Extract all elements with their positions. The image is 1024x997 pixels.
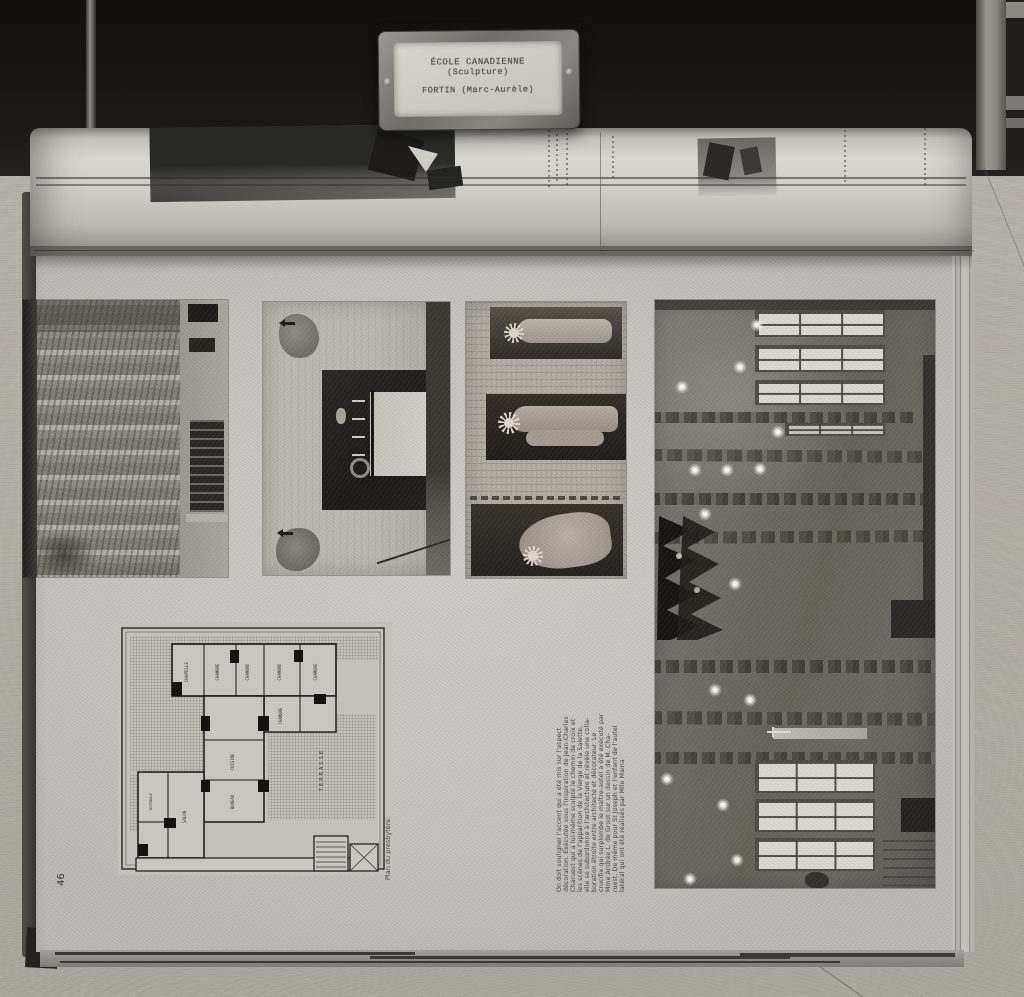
ceiling-light <box>660 772 674 786</box>
low-window-strip <box>785 422 885 436</box>
statue-silhouette <box>336 408 346 424</box>
wall-window <box>188 304 218 322</box>
body-text-line: décoration. Exécutée sous l'inspiration … <box>563 668 570 892</box>
ceiling-light <box>720 463 734 477</box>
window-panes <box>757 840 873 869</box>
wall-window <box>189 338 215 352</box>
page-number-wrapper: 46 <box>56 858 72 886</box>
body-text-line: boration étroite entre architecte et déc… <box>591 668 598 892</box>
candlestick <box>352 400 365 402</box>
body-text-line: ruest. De même pour St Joseph et l'enfan… <box>612 668 619 892</box>
speaker-dark-block <box>901 798 935 832</box>
plan-room-label: CHAMBRE <box>277 663 282 680</box>
right-frame-strip <box>976 0 1006 170</box>
arrow-head <box>279 319 285 327</box>
page-edge-line <box>370 956 790 959</box>
curled-page-fragment <box>697 137 776 196</box>
carved-figure <box>526 430 604 446</box>
page-fold-rule <box>36 177 966 179</box>
right-slatted-panel <box>1006 0 1024 152</box>
ceiling-light <box>716 798 730 812</box>
chandelier-icon <box>657 516 723 640</box>
relief-panel <box>490 307 622 359</box>
page-number: 46 <box>56 858 72 886</box>
clerestory-window <box>755 310 885 337</box>
page-edge-line <box>740 953 955 957</box>
concrete-column <box>655 412 917 423</box>
plant-silhouette <box>805 872 829 888</box>
ceiling-light <box>708 683 722 697</box>
concrete-column <box>655 711 935 725</box>
fragment-mark <box>703 142 735 180</box>
concrete-column <box>655 493 930 505</box>
body-text-wrapper: On doit souligner l'accent qui a été mis… <box>556 668 626 892</box>
body-text-line: crucifix qui surplombe le maître-autel a… <box>598 668 605 892</box>
page-fold-rule <box>36 184 966 186</box>
slat <box>1006 96 1024 110</box>
ceiling-light <box>771 425 785 439</box>
body-text-line: On doit souligner l'accent qui a été mis… <box>556 668 563 892</box>
ceiling-light <box>750 318 764 332</box>
ceiling-light <box>743 693 757 707</box>
candlestick <box>352 436 365 438</box>
page-vertical-crease <box>600 132 601 250</box>
ceiling-light <box>688 463 702 477</box>
window-panes <box>787 424 883 434</box>
brick-course <box>470 496 622 500</box>
illegible-text-marks <box>612 136 614 180</box>
crucifix-icon <box>772 727 774 737</box>
door-sill <box>186 514 228 522</box>
plan-room-label: VESTIBULE <box>149 793 153 810</box>
sanctuary-dark-band <box>923 355 935 615</box>
altar-front <box>370 392 434 476</box>
slat <box>1006 118 1024 128</box>
relief-panel <box>486 394 626 460</box>
floor-plan: CHAPELLE CHAMBRE CHAMBRE CHAMBRE CHAMBRE… <box>118 622 392 875</box>
window-panes <box>757 347 883 370</box>
plan-room-label: CHAMBRE <box>313 663 318 680</box>
body-text-line: Charuest qui a lui-même sculpté le chemi… <box>570 668 577 892</box>
label-line-3: FORTIN (Marc-Aurèle) <box>394 84 562 96</box>
page-edge-line <box>55 952 415 955</box>
clerestory-window <box>755 345 885 372</box>
page-stack-bottom <box>40 950 964 967</box>
halo-sunburst-icon <box>523 546 543 566</box>
body-text-line: Mme Andrée L. de Groot sur un dessin de … <box>605 668 612 892</box>
illegible-text-marks <box>566 128 568 188</box>
plan-room-label: CUISINE <box>230 753 235 770</box>
ceiling-light <box>733 360 747 374</box>
door <box>190 420 224 512</box>
photograph-of-open-book: CHAPELLE CHAMBRE CHAMBRE CHAMBRE CHAMBRE… <box>0 0 1024 997</box>
illegible-text-marks <box>924 128 926 188</box>
ceiling-light <box>728 577 742 591</box>
window-panes <box>757 382 883 403</box>
concrete-column <box>655 449 925 463</box>
body-text: On doit souligner l'accent qui a été mis… <box>556 668 626 892</box>
page-stack-right-edge <box>952 252 974 952</box>
arrow-head <box>277 529 283 537</box>
candlestick <box>352 418 365 420</box>
halo-sunburst-icon <box>504 323 524 343</box>
clerestory-window <box>755 380 885 405</box>
shelf-edge-highlight <box>86 0 96 142</box>
fragment-mark <box>740 146 763 175</box>
clerestory-window <box>755 760 875 793</box>
ceiling-light <box>730 853 744 867</box>
altar-niche <box>322 370 442 510</box>
window-panes <box>757 801 873 830</box>
window-panes <box>757 312 883 335</box>
building-wall <box>180 300 228 577</box>
halo-sunburst-icon <box>498 412 520 434</box>
label-card: ÉCOLE CANADIENNE (Sculpture) FORTIN (Mar… <box>394 41 563 117</box>
carved-figure <box>512 406 618 432</box>
altar-rail-strip <box>773 728 867 739</box>
body-text-line: elle se subordonne à l'architecture et r… <box>584 668 591 892</box>
photo-relief-panels <box>466 302 626 578</box>
plan-caption: Plan du presbytère. <box>384 794 396 880</box>
organ-dark-block <box>891 600 935 638</box>
walkway-shadow-blob <box>31 532 97 577</box>
body-text-line: latéral qui ont été réalisés par Mlle Ma… <box>619 668 626 892</box>
nave-top-edge <box>655 300 935 310</box>
window-panes <box>757 762 873 791</box>
plan-room-label: CHAPELLE <box>184 661 189 682</box>
body-text-line: les scènes de l'apparition de la Vierge … <box>577 668 584 892</box>
table-seam <box>984 168 1024 270</box>
page-edge-line <box>60 961 840 963</box>
plan-caption-wrapper: Plan du presbytère. <box>384 794 396 880</box>
crucifix-icon <box>767 731 791 733</box>
plate-screw-icon <box>384 78 392 86</box>
carved-figure <box>518 319 612 343</box>
label-line-2: (Sculpture) <box>394 66 562 78</box>
clerestory-window <box>755 838 875 871</box>
ceiling-light <box>698 507 712 521</box>
chapel-floor-band <box>426 302 450 575</box>
altar-table <box>883 840 935 886</box>
plan-room-label: CHAMBRE <box>215 663 220 680</box>
photo-church-nave <box>655 300 935 888</box>
wall-relief-sculpture <box>279 314 319 358</box>
illegible-text-marks <box>548 130 550 188</box>
photo-exterior-walkway <box>23 300 228 577</box>
photo-chapel-altar <box>263 302 450 575</box>
plan-room-label: SALON <box>182 810 187 823</box>
plan-room-label: CHAMBRE <box>278 707 283 724</box>
arrow-marker-icon <box>281 532 293 535</box>
concrete-column <box>655 660 935 673</box>
plan-room-label: TERRASSE <box>319 749 325 792</box>
arrow-marker-icon <box>283 322 295 325</box>
plan-room-label: BUREAU <box>230 794 235 809</box>
plan-room-label: CHAMBRE <box>245 663 250 680</box>
ceiling-light <box>683 872 697 886</box>
relief-panel <box>471 504 623 576</box>
slat <box>1006 2 1024 18</box>
wreath-ring <box>350 458 370 478</box>
candlestick <box>352 454 365 456</box>
plate-screw-icon <box>566 68 574 76</box>
ceiling-light <box>675 380 689 394</box>
clerestory-window <box>755 799 875 832</box>
fold-crease-line <box>34 250 970 251</box>
label-plate: ÉCOLE CANADIENNE (Sculpture) FORTIN (Mar… <box>377 29 580 131</box>
ceiling-light <box>753 462 767 476</box>
